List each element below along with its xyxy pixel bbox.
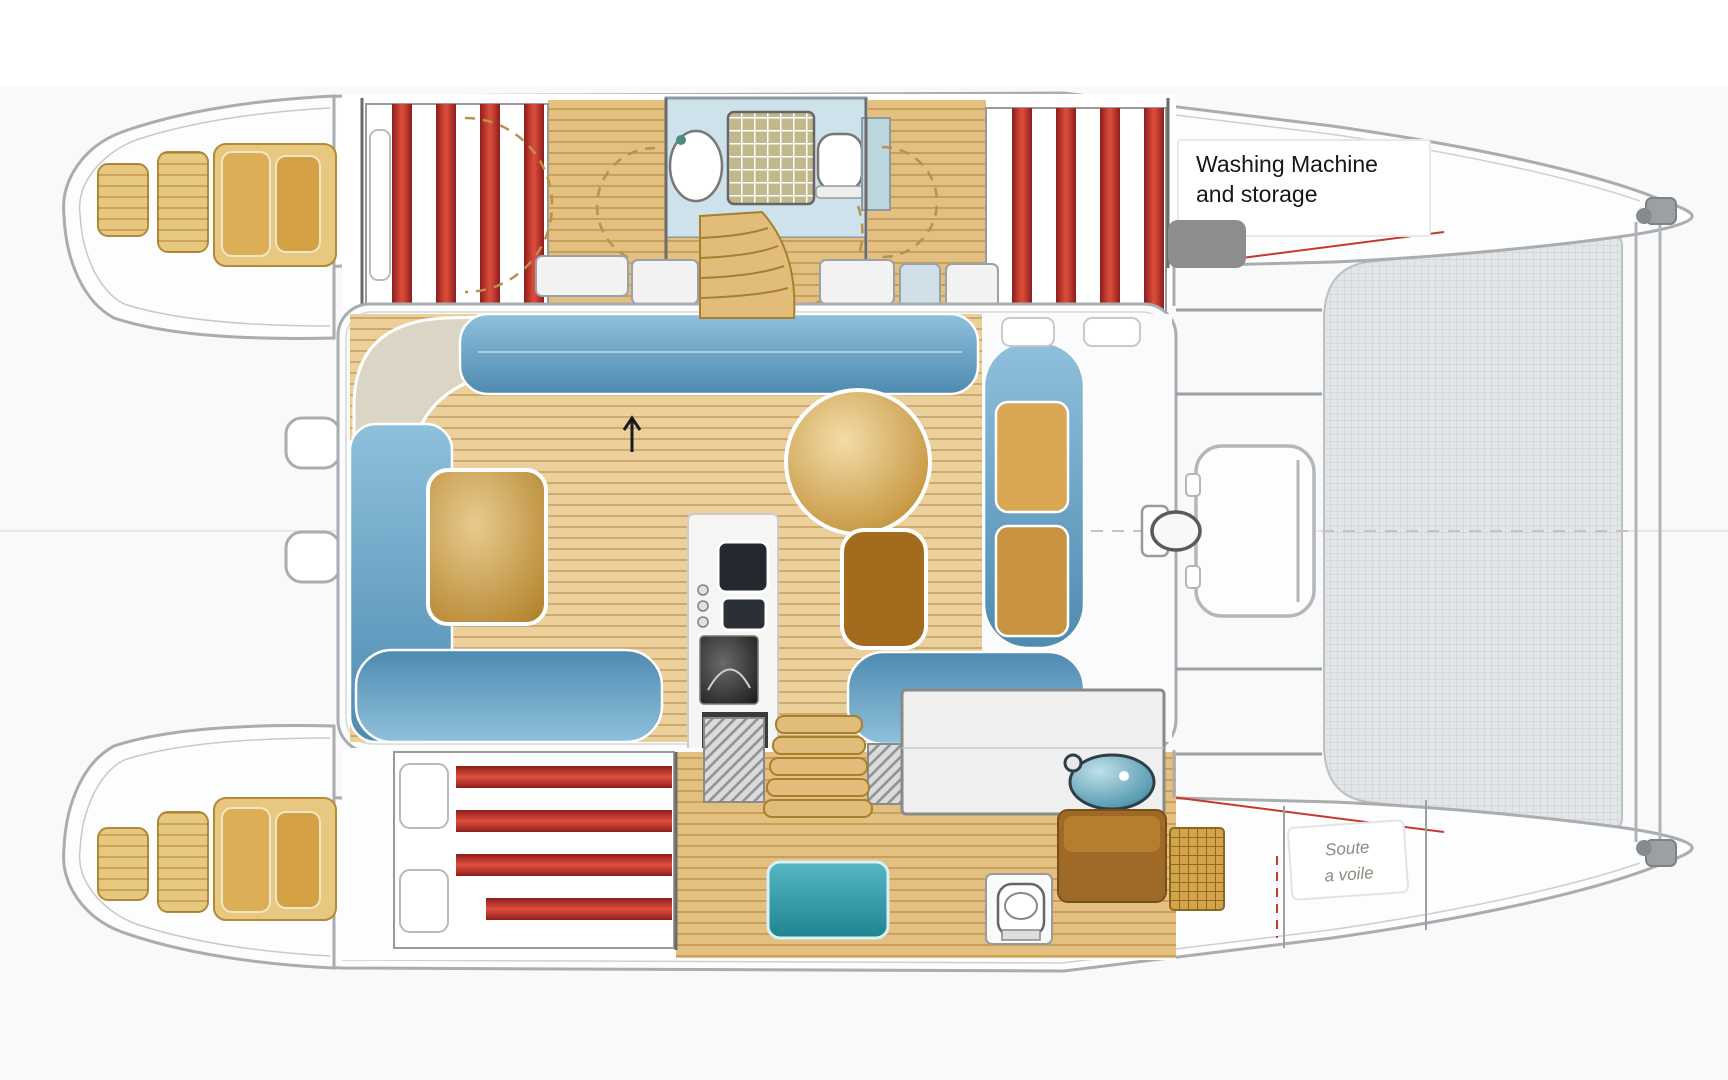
sail-locker-label-box — [1288, 820, 1409, 900]
seat-tab — [1186, 566, 1200, 588]
berth-stripe — [480, 104, 500, 308]
shower-icon — [728, 112, 814, 204]
stove-knob-icon — [698, 617, 708, 627]
starboard-aft-cabin-berth — [394, 752, 674, 948]
port-forward-cabin-berth — [986, 108, 1166, 314]
settee-wood-cushion — [996, 402, 1068, 512]
port-aft-cabin-berth — [366, 104, 548, 308]
port-step-1-texture — [98, 164, 148, 236]
pillow — [400, 764, 448, 828]
sail-locker-label-line2: a voile — [1324, 863, 1374, 885]
starboard-helm-cushion-2 — [276, 812, 320, 908]
deck-locker — [820, 260, 894, 304]
stair-tread — [770, 758, 867, 775]
cockpit-u-settee-bottom — [356, 650, 662, 742]
port-helm-cushion-1 — [222, 152, 270, 256]
catamaran-floorplan-image: Washing Machine and storage Soute a voil… — [0, 0, 1728, 1080]
starboard-step-2-texture — [158, 812, 208, 912]
salon-square-table — [842, 530, 926, 648]
floorplan-svg: Washing Machine and storage Soute a voil… — [0, 0, 1728, 1080]
pillow — [370, 130, 390, 280]
cockpit-table — [428, 470, 546, 624]
salon-round-table — [786, 390, 930, 534]
stove-knob-icon — [698, 585, 708, 595]
bow-roller-icon — [1636, 208, 1652, 224]
port-step-2-texture — [158, 152, 208, 252]
toilet-seat — [1005, 893, 1037, 919]
toilet-tank — [816, 186, 864, 198]
berth-stripe — [1100, 108, 1120, 314]
berth-stripe — [392, 104, 412, 308]
port-helm-cushion-2 — [276, 156, 320, 252]
berth-stripe — [1144, 108, 1164, 314]
pillow — [1084, 318, 1140, 346]
washing-machine-gray-box — [1168, 220, 1246, 268]
starboard-helm-cushion-1 — [222, 808, 270, 912]
companionway-stairs-starboard — [764, 716, 872, 817]
berth-stripe — [1012, 108, 1032, 314]
pillow — [1002, 318, 1054, 346]
annotation-sail-locker: Soute a voile — [1288, 820, 1409, 900]
sink-drain — [1119, 771, 1129, 781]
locker-hatched — [704, 718, 764, 802]
davit-step-upper — [286, 418, 340, 468]
stair-tread — [767, 779, 869, 796]
washing-machine-label-line1: Washing Machine — [1196, 151, 1378, 177]
berth-stripe — [456, 766, 672, 788]
stair-tread — [776, 716, 862, 733]
faucet-icon — [676, 135, 686, 145]
davit-step-lower — [286, 532, 340, 582]
deck-locker — [632, 260, 698, 304]
cane-storage-door — [1170, 828, 1224, 910]
faucet-icon — [1065, 755, 1081, 771]
foredeck-seat-outline — [1196, 446, 1314, 616]
deck-locker — [946, 264, 998, 308]
pillow — [400, 870, 448, 932]
mast-foot-icon — [1152, 512, 1200, 550]
settee-top-bench — [460, 314, 978, 394]
starboard-bench-seat — [768, 862, 888, 938]
toilet-tank — [1002, 930, 1040, 940]
berth-stripe — [436, 104, 456, 308]
berth-stripe — [486, 898, 672, 920]
deck-hatch — [900, 264, 940, 308]
stove-knob-icon — [698, 601, 708, 611]
starboard-step-1-texture — [98, 828, 148, 900]
sink-icon — [1070, 755, 1154, 809]
stair-tread — [764, 800, 872, 817]
bow-roller-icon — [1636, 840, 1652, 856]
seat-tab — [1186, 474, 1200, 496]
galley-sink-2-icon — [722, 598, 766, 630]
washing-machine-label-line2: and storage — [1196, 181, 1317, 207]
galley-sink-1-icon — [718, 542, 768, 592]
berth-stripe — [456, 810, 672, 832]
vanity-desk-top — [1064, 816, 1160, 852]
toilet-icon — [818, 134, 862, 190]
stair-tread — [773, 737, 865, 754]
berth-stripe — [1056, 108, 1076, 314]
sail-locker-label-line1: Soute — [1324, 838, 1370, 860]
deck-locker — [536, 256, 628, 296]
settee-wood-cushion — [996, 526, 1068, 636]
berth-stripe — [456, 854, 672, 876]
